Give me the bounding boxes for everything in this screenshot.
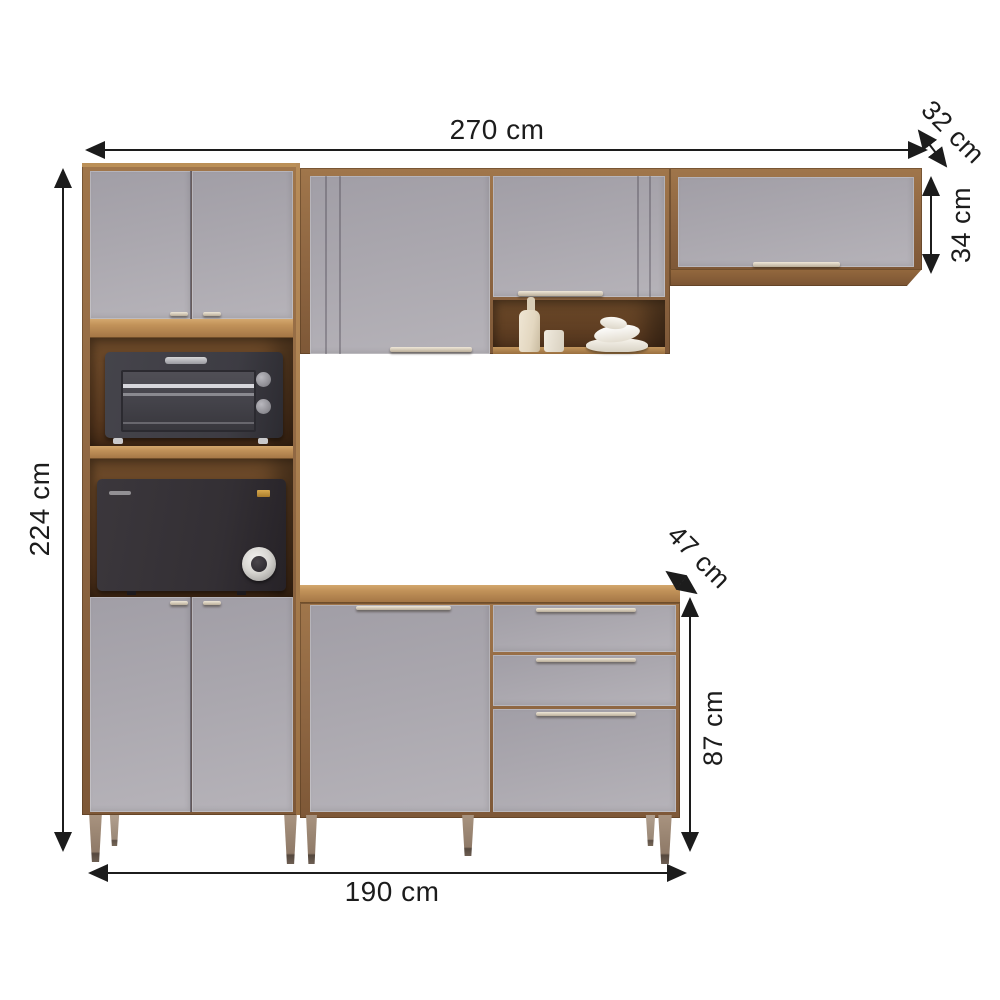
dim-label-total-height: 224 cm	[25, 447, 55, 571]
dim-label-upper-height: 34 cm	[946, 165, 976, 285]
dim-label-total-width: 270 cm	[397, 113, 597, 147]
dim-label-base-height: 87 cm	[698, 668, 728, 788]
dim-label-base-width: 190 cm	[292, 875, 492, 909]
dimension-lines	[0, 0, 1000, 1000]
dim-line-counter-depth	[667, 572, 696, 593]
dimension-diagram: 270 cm 32 cm 34 cm 224 cm 47 cm 87 cm 19…	[0, 0, 1000, 1000]
